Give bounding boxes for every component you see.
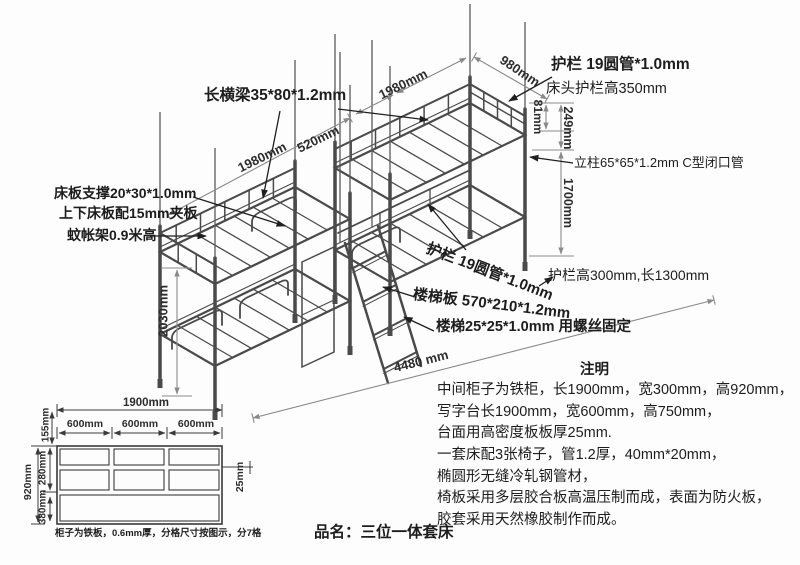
note-line: 胶套采用天然橡胶制作而成。 <box>437 512 626 529</box>
note-line: 中间柜子为铁柜，长1900mm，宽300mm，高920mm， <box>437 382 793 399</box>
callout-guardrail-pipe-top: 护栏 19圆管*1.0mm <box>551 56 690 74</box>
note-line: 椭圆形无缝冷轧钢管材， <box>437 469 597 486</box>
notes-heading: 注明 <box>580 362 609 379</box>
cabinet-caption: 柜子为铁板，0.6mm厚，分格尺寸按图示，分7格 <box>55 529 261 540</box>
dimension-lines <box>162 53 715 423</box>
cabinet-dim-cell-2: 600mm <box>122 418 158 430</box>
cabinet-dim-top-row: 155mm <box>41 408 52 442</box>
cabinet-dim-bottom-row: 380mm <box>38 490 49 524</box>
callout-ladder-spec: 楼梯25*25*1.0mm 用螺丝固定 <box>436 319 631 336</box>
cabinet-dim-overall-width: 1900mm <box>123 397 169 409</box>
product-name: 品名：三位一体套床 <box>314 524 454 542</box>
dim-overall-height: 2030mm <box>156 285 171 337</box>
note-line: 写字台长1900mm，宽600mm，高750mm， <box>437 404 721 421</box>
cabinet-dim-shelf-thickness: 25mm <box>234 462 246 492</box>
callout-head-guardrail-height: 床头护栏高350mm <box>546 81 667 98</box>
note-line: 台面用高密度板板厚25mm. <box>437 425 612 442</box>
cabinet-dim-middle-row: 280mm <box>38 451 49 485</box>
cabinet-dim-cell-1: 600mm <box>67 418 103 430</box>
blueprint-page: 长横梁35*80*1.2mm 床板支撑20*30*1.0mm 上下床板配15mm… <box>0 0 800 565</box>
note-line: 椅板采用多层胶合板高温压制而成，表面为防火板， <box>437 490 771 507</box>
callout-column-spec: 立柱65*65*1.2mm C型闭口管 <box>574 156 744 171</box>
dim-column-height: 1700mm <box>561 178 575 228</box>
cabinet-dim-cell-3: 600mm <box>178 418 214 430</box>
callout-mosquito-net-frame: 蚊帐架0.9米高 <box>67 227 156 243</box>
callout-bed-board-support: 床板支撑20*30*1.0mm <box>54 185 196 201</box>
note-line: 一套床配3张椅子，管1.2厚，40mm*20mm， <box>437 447 725 464</box>
dim-rail-upper-height: 249mm <box>561 106 575 149</box>
cabinet-dim-overall-height: 920mm <box>22 464 34 500</box>
callout-long-beam: 长横梁35*80*1.2mm <box>204 87 346 105</box>
callout-side-guardrail-size: 护栏高300mm,长1300mm <box>548 267 709 283</box>
callout-bed-board-ply: 上下床板配15mm夹板 <box>59 205 197 221</box>
dim-rail-gap-height: 81mm <box>531 100 545 135</box>
